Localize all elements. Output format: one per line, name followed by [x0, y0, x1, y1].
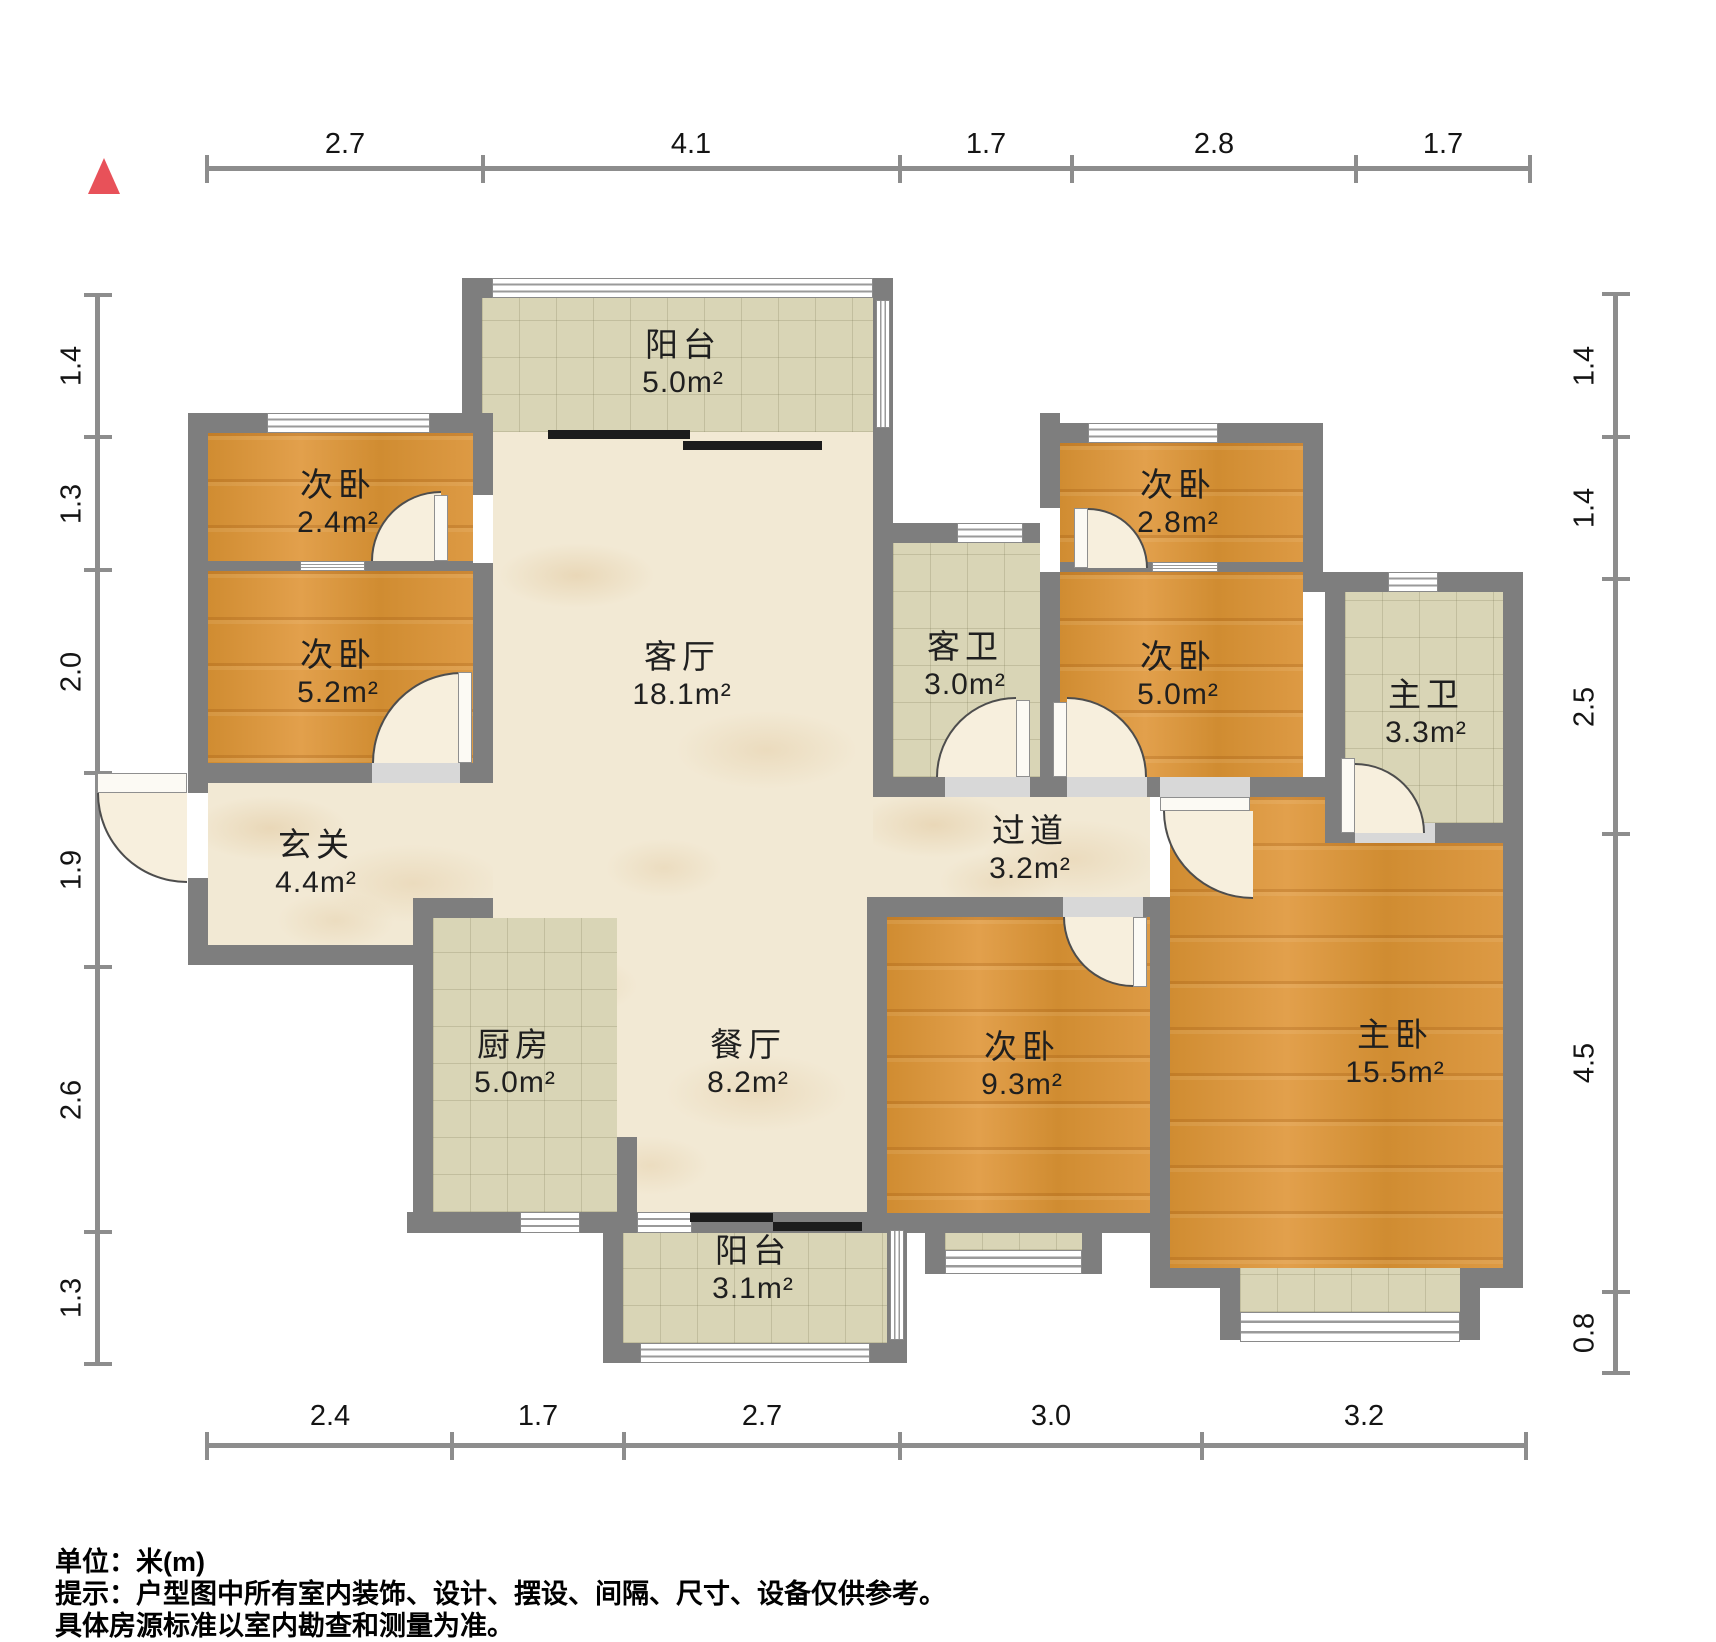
dim-tick — [1354, 155, 1358, 183]
dim-tick — [450, 1432, 454, 1460]
dim-label-top: 1.7 — [1423, 128, 1463, 161]
dim-label-bottom: 3.2 — [1344, 1400, 1384, 1433]
door-leaf-bedroom-c — [1074, 508, 1088, 568]
window-kitchen — [520, 1212, 580, 1233]
wall-segment — [473, 563, 493, 783]
dim-tick — [622, 1432, 626, 1460]
bay-window-master-glass — [1240, 1312, 1460, 1342]
wall-segment — [1030, 777, 1067, 797]
dim-label-right: 2.5 — [1569, 687, 1602, 727]
wall-segment — [473, 433, 493, 495]
wall-segment — [188, 945, 433, 965]
window-bedroom-c — [1088, 423, 1218, 443]
wall-segment — [867, 897, 887, 1233]
dim-label-top: 4.1 — [671, 128, 711, 161]
dim-tick — [481, 155, 485, 183]
dim-tick — [1602, 1290, 1630, 1294]
wall-segment — [603, 1213, 623, 1363]
dim-tick — [1528, 155, 1532, 183]
wall-segment — [1147, 777, 1160, 797]
room-label-living: 客厅 18.1m² — [632, 630, 731, 712]
dim-tick — [205, 155, 209, 183]
wall-segment — [925, 1213, 945, 1274]
door-gap-bedroom-c — [1040, 508, 1060, 572]
dim-tick — [1602, 1371, 1630, 1375]
window-master-bath — [1388, 572, 1438, 592]
sliding-door-balcony-south — [690, 1213, 773, 1222]
window-partition-cd — [1152, 562, 1218, 572]
room-label-bedroom-d: 次卧 5.0m² — [1137, 630, 1219, 712]
dim-tick — [1602, 577, 1630, 581]
wall-segment — [460, 763, 493, 783]
window-balcony-north — [492, 278, 873, 298]
room-label-hall: 玄关 4.4m² — [275, 818, 357, 900]
wall-segment — [462, 278, 482, 432]
door-leaf-bedroom-b — [458, 672, 472, 763]
window-bedroom-a — [267, 413, 430, 433]
room-label-master-bath: 主卫 3.3m² — [1385, 668, 1467, 750]
dim-label-top: 2.8 — [1194, 128, 1234, 161]
dim-label-left: 1.3 — [56, 1278, 89, 1318]
wall-segment — [1503, 572, 1523, 1288]
wall-segment — [413, 898, 493, 918]
dim-label-bottom: 2.7 — [742, 1400, 782, 1433]
door-threshold-guest-bath — [945, 777, 1030, 797]
wall-segment — [1460, 1288, 1480, 1340]
bay-window-master — [1240, 1268, 1460, 1312]
wall-segment — [1460, 1268, 1503, 1288]
wall-segment — [1150, 1268, 1240, 1288]
room-label-guest-bath: 客卫 3.0m² — [924, 620, 1006, 702]
dim-tick — [1602, 832, 1630, 836]
room-label-kitchen: 厨房 5.0m² — [474, 1018, 556, 1100]
dim-tick — [1200, 1432, 1204, 1460]
wall-segment — [1082, 1213, 1102, 1274]
room-label-corridor: 过道 3.2m² — [989, 804, 1071, 886]
dim-tick — [84, 568, 112, 572]
door-leaf-entrance — [97, 773, 187, 793]
room-label-bedroom-e: 次卧 9.3m² — [981, 1020, 1063, 1102]
room-label-bedroom-a: 次卧 2.4m² — [297, 458, 379, 540]
door-threshold-bedroom-e — [1063, 897, 1143, 917]
wall-segment — [188, 413, 208, 793]
dim-label-left: 2.6 — [56, 1080, 89, 1120]
dim-label-right: 4.5 — [1569, 1043, 1602, 1083]
dim-tick — [84, 435, 112, 439]
dim-line-top — [207, 166, 1530, 171]
door-threshold-bedroom-b — [372, 763, 460, 783]
dim-line-bottom — [207, 1443, 1526, 1448]
wall-segment — [1250, 777, 1325, 797]
dim-label-left: 1.4 — [56, 346, 89, 386]
wall-segment — [1220, 1288, 1240, 1340]
room-label-balcony-north: 阳台 5.0m² — [642, 318, 724, 400]
dim-tick — [898, 1432, 902, 1460]
north-arrow-icon — [88, 158, 120, 194]
dim-label-right: 0.8 — [1569, 1313, 1602, 1353]
sliding-door-balcony-north — [548, 430, 690, 439]
dim-label-top: 2.7 — [325, 128, 365, 161]
floor-plan-canvas: 2.7 4.1 1.7 2.8 1.7 2.4 1.7 2.7 3.0 3.2 … — [0, 0, 1716, 1642]
dim-line-left — [95, 295, 100, 1364]
dim-label-right: 1.4 — [1569, 346, 1602, 386]
wall-segment — [188, 763, 372, 783]
dim-tick — [1602, 292, 1630, 296]
room-label-master-bedroom: 主卧 15.5m² — [1345, 1008, 1444, 1090]
wall-segment — [1150, 897, 1170, 1268]
door-leaf-bedroom-e — [1133, 917, 1147, 987]
dim-label-top: 1.7 — [966, 128, 1006, 161]
room-label-bedroom-b: 次卧 5.2m² — [297, 628, 379, 710]
door-leaf-master-bath — [1341, 758, 1355, 833]
dim-label-right: 1.4 — [1569, 488, 1602, 528]
dim-tick — [1070, 155, 1074, 183]
room-label-balcony-south: 阳台 3.1m² — [712, 1224, 794, 1306]
dim-label-bottom: 2.4 — [310, 1400, 350, 1433]
dim-label-bottom: 1.7 — [518, 1400, 558, 1433]
dim-tick — [84, 1230, 112, 1234]
window-balcony-south-side — [890, 1230, 904, 1340]
door-leaf-bedroom-d — [1053, 702, 1067, 777]
wall-segment — [413, 898, 433, 1233]
wall-segment — [873, 543, 893, 797]
dim-label-left: 2.0 — [56, 652, 89, 692]
dim-tick — [898, 155, 902, 183]
door-leaf-master — [1160, 797, 1250, 811]
dim-tick — [1524, 1432, 1528, 1460]
footer-tip-line2: 具体房源标准以室内勘查和测量为准。 — [55, 1604, 514, 1642]
door-gap-bedroom-a — [473, 495, 493, 563]
bay-window-bedroom-e-glass — [945, 1250, 1082, 1274]
window-dining-left — [637, 1212, 692, 1233]
wall-segment — [867, 897, 1063, 917]
door-gap-entrance — [188, 793, 208, 878]
dim-label-left: 1.9 — [56, 850, 89, 890]
dim-tick — [84, 965, 112, 969]
door-swing-entrance — [97, 793, 187, 883]
door-leaf-bedroom-a — [434, 495, 448, 561]
dim-tick — [205, 1432, 209, 1460]
dim-tick — [84, 1362, 112, 1366]
window-guest-bath — [957, 523, 1023, 543]
door-leaf-guest-bath — [1016, 700, 1030, 777]
sliding-door-balcony-north — [683, 441, 822, 450]
wall-segment — [1435, 823, 1503, 843]
window-partition-ab — [300, 561, 365, 571]
wall-segment — [1303, 423, 1323, 592]
door-threshold-master — [1160, 777, 1250, 797]
wall-segment — [1143, 897, 1170, 917]
dim-tick — [84, 293, 112, 297]
room-label-bedroom-c: 次卧 2.8m² — [1137, 458, 1219, 540]
dim-tick — [1602, 435, 1630, 439]
dim-label-bottom: 3.0 — [1031, 1400, 1071, 1433]
wall-segment — [873, 777, 945, 797]
dim-label-left: 1.3 — [56, 484, 89, 524]
window-balcony-north-side — [876, 300, 890, 428]
window-balcony-south — [640, 1343, 870, 1363]
door-threshold-bedroom-d — [1067, 777, 1147, 797]
room-label-dining: 餐厅 8.2m² — [707, 1018, 789, 1100]
